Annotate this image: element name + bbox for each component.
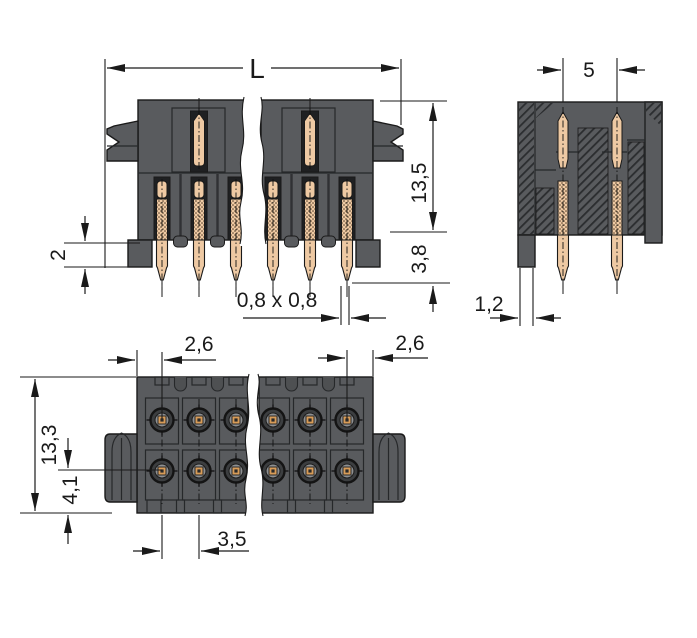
dim-label-row-offset: 4,1 (59, 475, 82, 504)
dim-pitch: 3,5 (133, 515, 249, 559)
dim-label-step: 2 (47, 249, 70, 261)
front-right-step (356, 240, 380, 267)
bottom-view (105, 374, 405, 517)
front-view (107, 97, 403, 297)
dim-label-length: L (249, 53, 265, 84)
dim-pin-square: 0,8 x 0,8 (237, 286, 386, 325)
side-solder-leg (518, 235, 535, 267)
dim-height: 13,5 (380, 101, 447, 232)
dim-label-pitch: 3,5 (217, 528, 246, 551)
connector-drawing-page: L 13,5 3,8 2 0,8 x 0,8 5 1,2 (0, 0, 697, 638)
dim-step: 2 (47, 216, 140, 294)
front-left-flange (107, 121, 138, 161)
dim-label-height: 13,5 (408, 163, 431, 204)
dim-leg-width: 1,2 (474, 268, 561, 326)
dim-label-depth: 13,3 (38, 425, 61, 466)
dim-label-leg-width: 1,2 (474, 293, 503, 316)
dim-label-edge-pin-left: 2,6 (184, 333, 213, 356)
dim-label-row-spacing: 5 (583, 59, 595, 82)
dim-label-pin-protrusion: 3,8 (408, 244, 431, 273)
dim-label-edge-pin-right: 2,6 (395, 332, 424, 355)
front-right-flange (373, 121, 403, 161)
front-left-step (128, 240, 152, 267)
dim-label-pin-square: 0,8 x 0,8 (237, 289, 318, 312)
technical-drawing: L 13,5 3,8 2 0,8 x 0,8 5 1,2 (0, 0, 697, 638)
side-section-view (518, 58, 662, 294)
dim-row-spacing: 5 (537, 59, 645, 82)
